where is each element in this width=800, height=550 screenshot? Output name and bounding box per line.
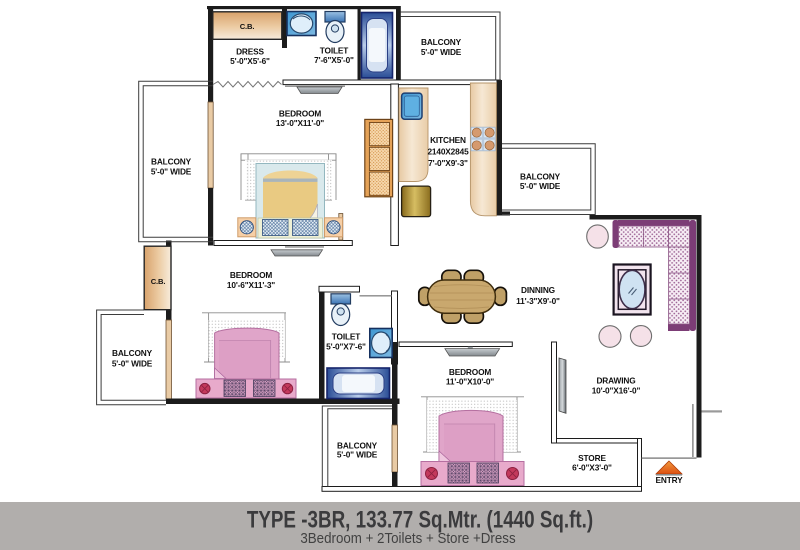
svg-text:7'-6"X5'-0": 7'-6"X5'-0" (314, 55, 354, 65)
svg-text:5'-0" WIDE: 5'-0" WIDE (151, 167, 192, 177)
svg-text:5'-0" WIDE: 5'-0" WIDE (421, 47, 462, 57)
svg-text:3Bedroom + 2Toilets + Store +D: 3Bedroom + 2Toilets + Store +Dress (300, 529, 515, 546)
svg-text:BALCONY: BALCONY (112, 348, 153, 358)
svg-text:5'-0" WIDE: 5'-0" WIDE (520, 181, 561, 191)
svg-text:C.B.: C.B. (151, 277, 166, 286)
svg-text:ENTRY: ENTRY (655, 475, 683, 485)
svg-text:11'-0"X10'-0": 11'-0"X10'-0" (446, 377, 494, 387)
svg-text:BALCONY: BALCONY (520, 172, 561, 182)
svg-text:BALCONY: BALCONY (421, 37, 462, 47)
svg-text:TOILET: TOILET (320, 46, 349, 56)
svg-text:DRESS: DRESS (236, 47, 264, 57)
svg-text:BEDROOM: BEDROOM (279, 109, 322, 119)
svg-text:BALCONY: BALCONY (151, 157, 192, 167)
svg-text:13'-0"X11'-0": 13'-0"X11'-0" (276, 118, 324, 128)
svg-text:6'-0"X3'-0": 6'-0"X3'-0" (572, 463, 612, 473)
svg-text:5'-0" WIDE: 5'-0" WIDE (112, 359, 153, 369)
svg-text:DRAWING: DRAWING (596, 376, 635, 386)
svg-text:5'-0" WIDE: 5'-0" WIDE (337, 450, 378, 460)
svg-text:5'-0"X7'-6": 5'-0"X7'-6" (326, 342, 366, 352)
svg-text:TOILET: TOILET (332, 332, 361, 342)
svg-text:C.B.: C.B. (240, 22, 255, 31)
svg-text:STORE: STORE (578, 453, 606, 463)
svg-text:BEDROOM: BEDROOM (230, 270, 273, 280)
svg-text:10'-0"X16'-0": 10'-0"X16'-0" (592, 386, 641, 396)
svg-text:7'-0"X9'-3": 7'-0"X9'-3" (428, 158, 468, 168)
svg-text:10'-6"X11'-3": 10'-6"X11'-3" (227, 280, 275, 290)
svg-text:BEDROOM: BEDROOM (449, 367, 492, 377)
svg-text:5'-0"X5'-6": 5'-0"X5'-6" (230, 56, 270, 66)
svg-text:DINNING: DINNING (521, 285, 555, 295)
svg-text:KITCHEN: KITCHEN (430, 135, 466, 145)
svg-text:11'-3"X9'-0": 11'-3"X9'-0" (516, 296, 560, 306)
svg-text:2140X2845: 2140X2845 (427, 147, 469, 157)
